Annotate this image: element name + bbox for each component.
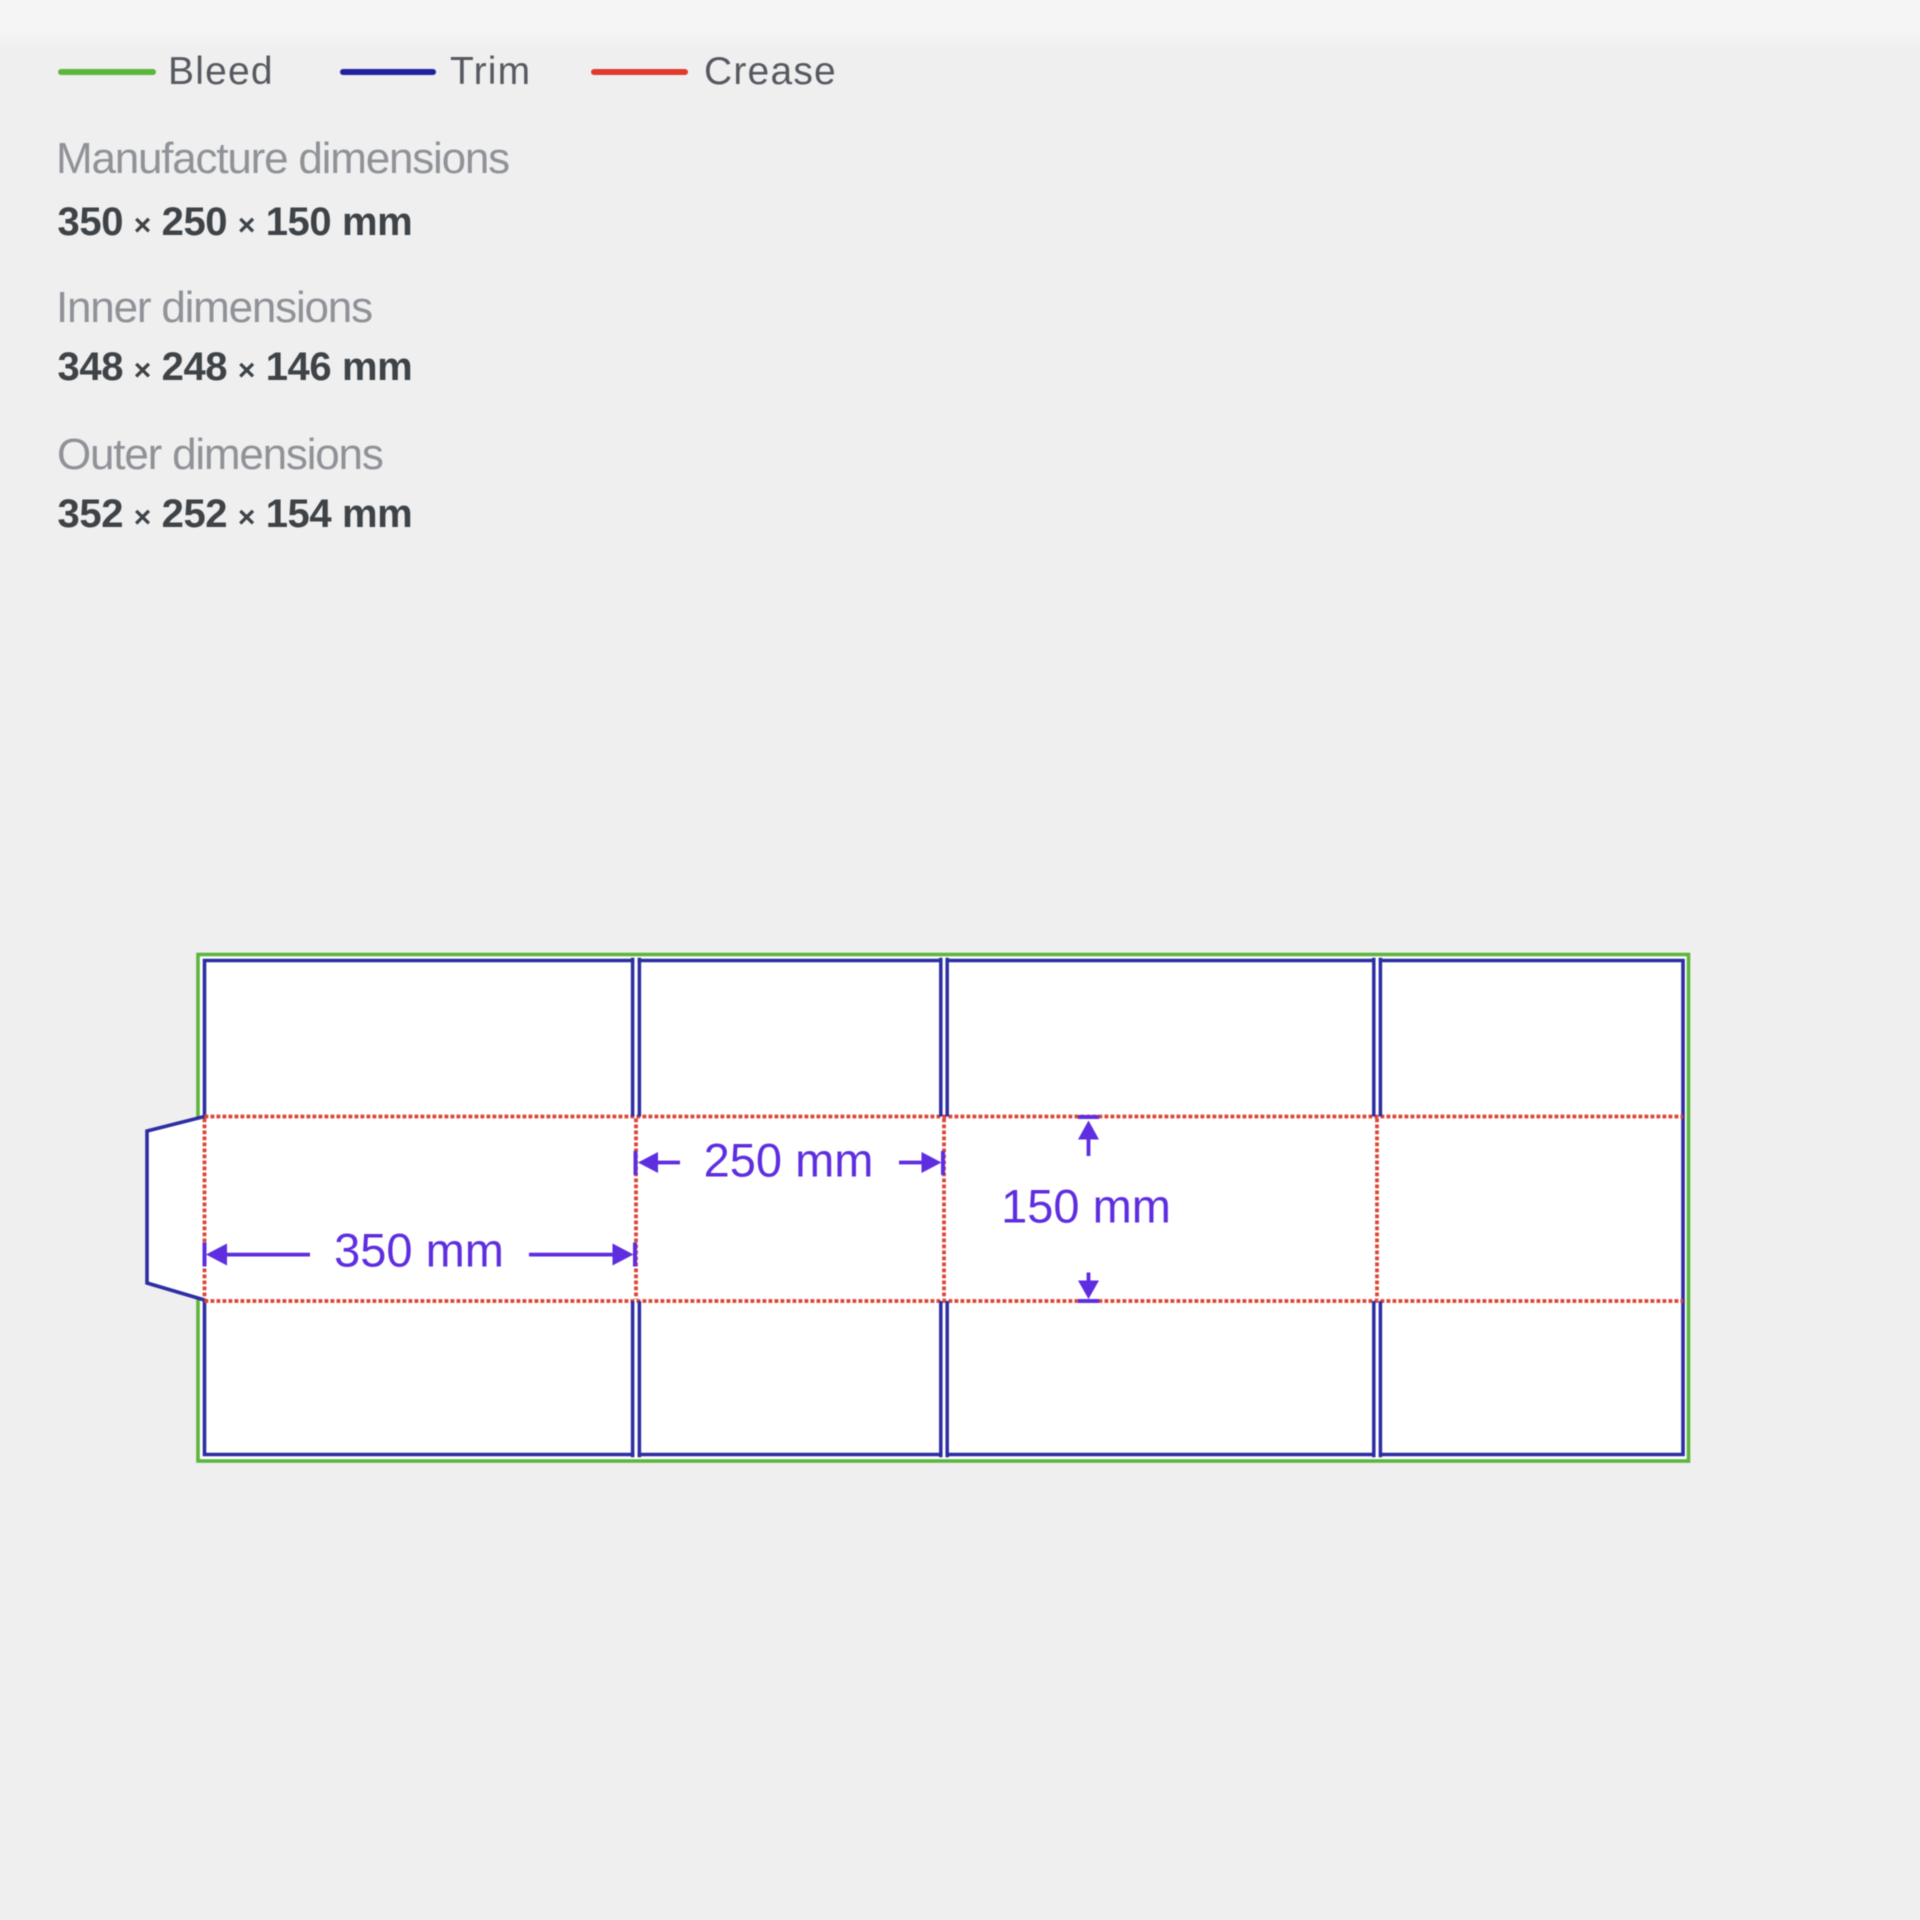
svg-text:350 mm: 350 mm	[334, 1224, 504, 1277]
svg-text:150 mm: 150 mm	[1001, 1180, 1171, 1233]
svg-text:250 mm: 250 mm	[704, 1134, 874, 1187]
